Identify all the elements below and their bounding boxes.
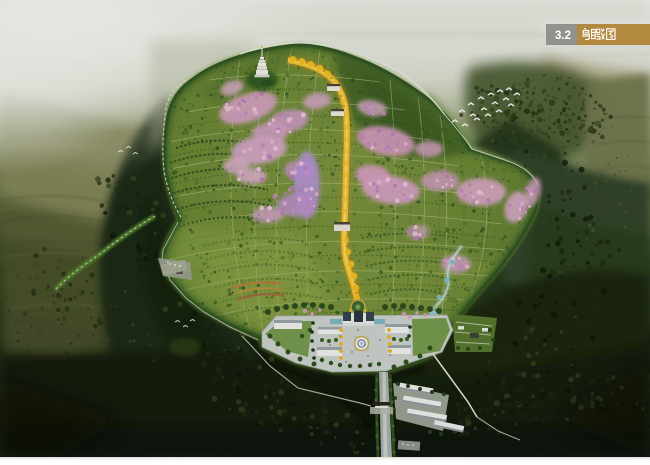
svg-text:3.2: 3.2 (555, 30, 571, 42)
